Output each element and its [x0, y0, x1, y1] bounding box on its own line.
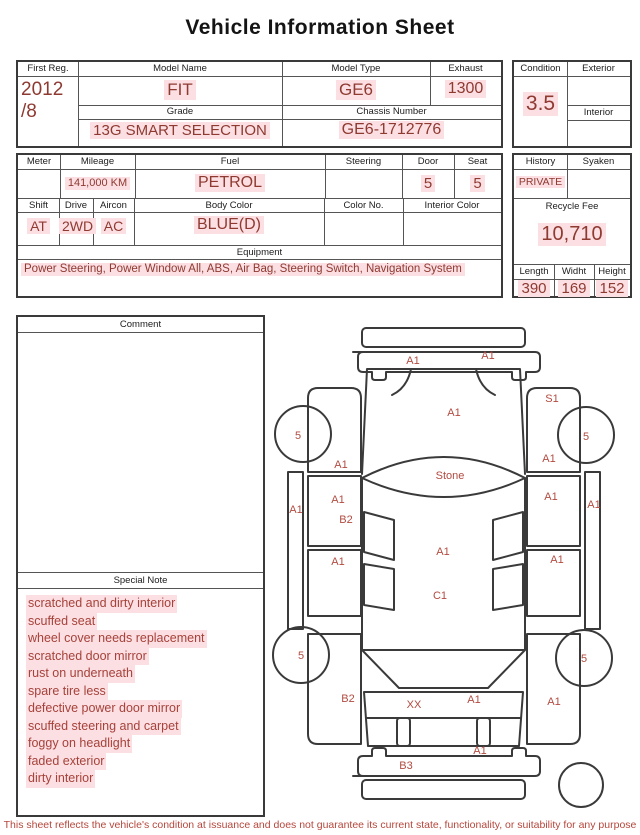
diagram-label: A1 — [447, 407, 460, 419]
car-outline — [273, 328, 614, 807]
history-table: History Syaken PRIVATE Recycle Fee 10,71… — [512, 153, 632, 298]
cabin-sides — [362, 478, 525, 650]
hood-outline — [362, 369, 525, 474]
diagram-label: 5 — [295, 430, 301, 442]
grid-line — [18, 588, 263, 589]
diagram-label: A1 — [542, 453, 555, 465]
grid-line — [325, 155, 326, 198]
exhaust-label: Exhaust — [430, 62, 501, 76]
special-note-item: scuffed steering and carpet — [26, 718, 260, 736]
special-note-label: Special Note — [18, 574, 263, 588]
history-value: PRIVATE — [514, 176, 567, 188]
door-value: 5 — [402, 175, 454, 192]
diagram-label: 5 — [581, 653, 587, 665]
model-name-label: Model Name — [78, 62, 282, 76]
window-rear-left — [364, 564, 394, 610]
front-top-strip — [362, 328, 525, 347]
rear-window — [362, 650, 525, 688]
grid-line — [78, 119, 501, 120]
grade-value: 13G SMART SELECTION — [78, 122, 282, 139]
diagram-label: 5 — [583, 431, 589, 443]
seat-label: Seat — [454, 155, 501, 169]
window-rear-right — [493, 564, 523, 610]
diagram-label: XX — [407, 699, 422, 711]
length-label: Length — [514, 265, 554, 279]
special-note-item: wheel cover needs replacement — [26, 630, 260, 648]
aircon-value: AC — [93, 218, 134, 234]
condition-value: 3.5 — [514, 92, 567, 116]
model-info-table: First Reg. Model Name Model Type Exhaust… — [16, 60, 503, 148]
height-label: Height — [594, 265, 630, 279]
rear-bumper — [353, 748, 540, 776]
door-front-right — [527, 476, 580, 546]
grid-line — [567, 155, 568, 198]
grid-line — [567, 62, 568, 146]
special-note-item: rust on underneath — [26, 665, 260, 683]
fuel-value: PETROL — [135, 174, 325, 192]
model-type-value: GE6 — [282, 80, 430, 100]
first-reg-value: 2012 /8 — [21, 79, 77, 123]
window-front-right — [493, 512, 523, 560]
interior-label: Interior — [567, 106, 630, 120]
special-note-item: defective power door mirror — [26, 700, 260, 718]
vehicle-damage-diagram: A1A1A1S155A1A1StoneA1A1B2A1A1A1A1A1C155B… — [268, 312, 640, 817]
front-bumper — [353, 352, 540, 380]
exhaust-value: 1300 — [430, 80, 501, 98]
special-note-list: scratched and dirty interiorscuffed seat… — [26, 595, 260, 788]
tailgate-recess-right — [477, 718, 490, 746]
chassis-number-label: Chassis Number — [282, 105, 501, 119]
special-note-item: scratched door mirror — [26, 648, 260, 666]
diagram-label: A1 — [550, 554, 563, 566]
quarter-rear-left — [308, 634, 361, 744]
door-front-left — [308, 476, 361, 546]
shift-label: Shift — [18, 199, 59, 213]
diagram-label: A1 — [587, 499, 600, 511]
rear-bottom-strip — [362, 780, 525, 799]
grid-line — [18, 169, 501, 170]
diagram-label: B2 — [341, 693, 354, 705]
diagram-label: A1 — [544, 491, 557, 503]
condition-label: Condition — [514, 62, 567, 76]
chassis-number-value: GE6-1712776 — [282, 121, 501, 139]
body-color-value: BLUE(D) — [134, 216, 324, 234]
fuel-label: Fuel — [135, 155, 325, 169]
grid-line — [18, 76, 501, 77]
width-value: 169 — [554, 280, 594, 297]
diagram-label: A1 — [406, 355, 419, 367]
diagram-label: 5 — [298, 650, 304, 662]
shift-value: AT — [18, 218, 59, 234]
diagram-label: A1 — [481, 350, 494, 362]
diagram-label: A1 — [473, 745, 486, 757]
recycle-fee-value: 10,710 — [514, 223, 630, 246]
diagram-label: A1 — [331, 494, 344, 506]
window-front-left — [364, 512, 394, 560]
equipment-value: Power Steering, Power Window All, ABS, A… — [21, 263, 499, 276]
page-title: Vehicle Information Sheet — [0, 16, 640, 40]
comment-label: Comment — [18, 318, 263, 332]
mileage-value: 141,000 KM — [60, 177, 135, 190]
diagram-label: A1 — [467, 694, 480, 706]
interior-color-label: Interior Color — [403, 199, 501, 213]
recycle-fee-label: Recycle Fee — [514, 200, 630, 214]
seat-value: 5 — [454, 175, 501, 192]
model-type-label: Model Type — [282, 62, 430, 76]
grade-label: Grade — [78, 105, 282, 119]
diagram-label: A1 — [436, 546, 449, 558]
spare-tire — [559, 763, 603, 807]
color-no-label: Color No. — [324, 199, 403, 213]
door-label: Door — [402, 155, 454, 169]
height-value: 152 — [594, 280, 630, 297]
diagram-label: A1 — [334, 459, 347, 471]
drive-value: 2WD — [59, 218, 93, 234]
grid-line — [514, 169, 630, 170]
aircon-label: Aircon — [93, 199, 134, 213]
grid-line — [324, 198, 325, 245]
diagram-label: A1 — [331, 556, 344, 568]
sill-right — [585, 472, 600, 629]
tailgate-recess-left — [397, 718, 410, 746]
diagram-label: S1 — [545, 393, 558, 405]
first-reg-label: First Reg. — [18, 62, 78, 76]
grid-line — [514, 76, 630, 77]
diagram-labels: A1A1A1S155A1A1StoneA1A1B2A1A1A1A1A1C155B… — [289, 350, 600, 772]
special-note-item: scratched and dirty interior — [26, 595, 260, 613]
condition-table: Condition Exterior Interior 3.5 — [512, 60, 632, 148]
drive-label: Drive — [59, 199, 93, 213]
wheel-front-left — [275, 406, 331, 462]
model-name-value: FIT — [78, 80, 282, 100]
spec-table: Meter Mileage Fuel Steering Door Seat 14… — [16, 153, 503, 298]
grid-line — [514, 198, 630, 199]
equipment-label: Equipment — [18, 246, 501, 260]
special-note-item: scuffed seat — [26, 613, 260, 631]
body-color-label: Body Color — [134, 199, 324, 213]
steering-label: Steering — [325, 155, 402, 169]
length-value: 390 — [514, 280, 554, 297]
width-label: Widht — [554, 265, 594, 279]
grid-line — [18, 259, 501, 260]
grid-line — [567, 120, 630, 121]
grid-line — [18, 332, 263, 333]
diagram-label: C1 — [433, 590, 447, 602]
sill-left — [288, 472, 303, 629]
diagram-label: B3 — [399, 760, 412, 772]
exterior-label: Exterior — [567, 62, 630, 76]
diagram-label: A1 — [547, 696, 560, 708]
special-note-item: spare tire less — [26, 683, 260, 701]
diagram-label: Stone — [436, 470, 465, 482]
meter-label: Meter — [18, 155, 60, 169]
comment-panel: Comment Special Note scratched and dirty… — [16, 315, 265, 817]
special-note-item: foggy on headlight — [26, 735, 260, 753]
diagram-label: A1 — [289, 504, 302, 516]
mileage-label: Mileage — [60, 155, 135, 169]
quarter-rear-right — [527, 634, 580, 744]
special-note-item: dirty interior — [26, 770, 260, 788]
grid-line — [18, 572, 263, 573]
disclaimer-text: This sheet reflects the vehicle's condit… — [0, 819, 640, 831]
diagram-label: B2 — [339, 514, 352, 526]
grid-line — [403, 198, 404, 245]
special-note-item: faded exterior — [26, 753, 260, 771]
grid-line — [18, 212, 501, 213]
vehicle-information-sheet: Vehicle Information Sheet First Reg. Mod… — [0, 0, 640, 835]
history-label: History — [514, 155, 567, 169]
syaken-label: Syaken — [567, 155, 630, 169]
